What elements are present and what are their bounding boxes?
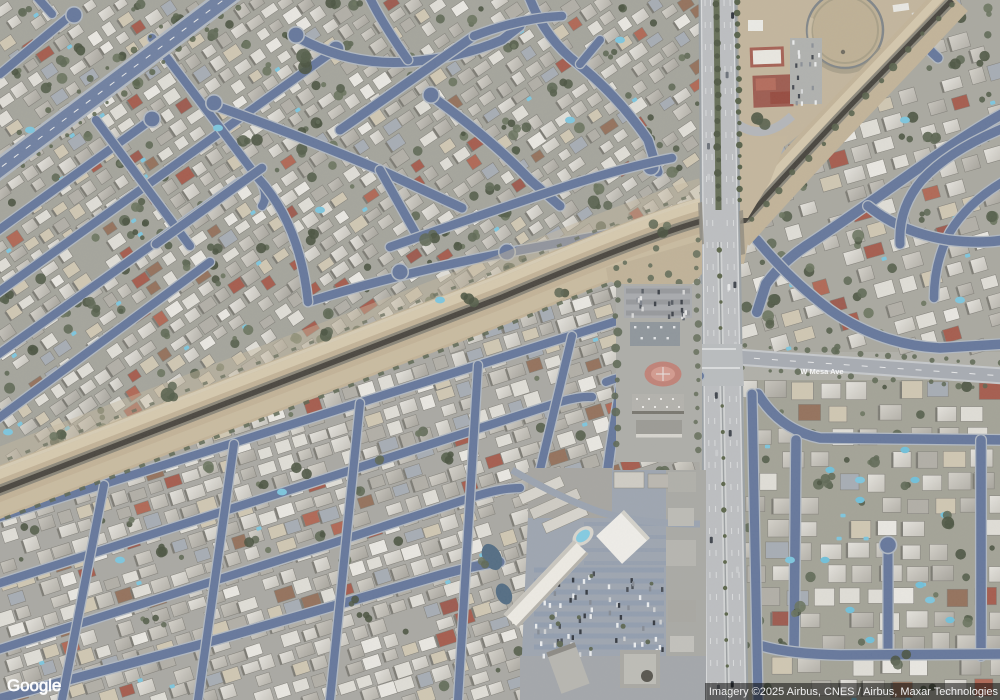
svg-text:Google: Google [7, 676, 61, 695]
svg-text:Imagery ©2025 Airbus, CNES / A: Imagery ©2025 Airbus, CNES / Airbus, Max… [709, 686, 999, 698]
